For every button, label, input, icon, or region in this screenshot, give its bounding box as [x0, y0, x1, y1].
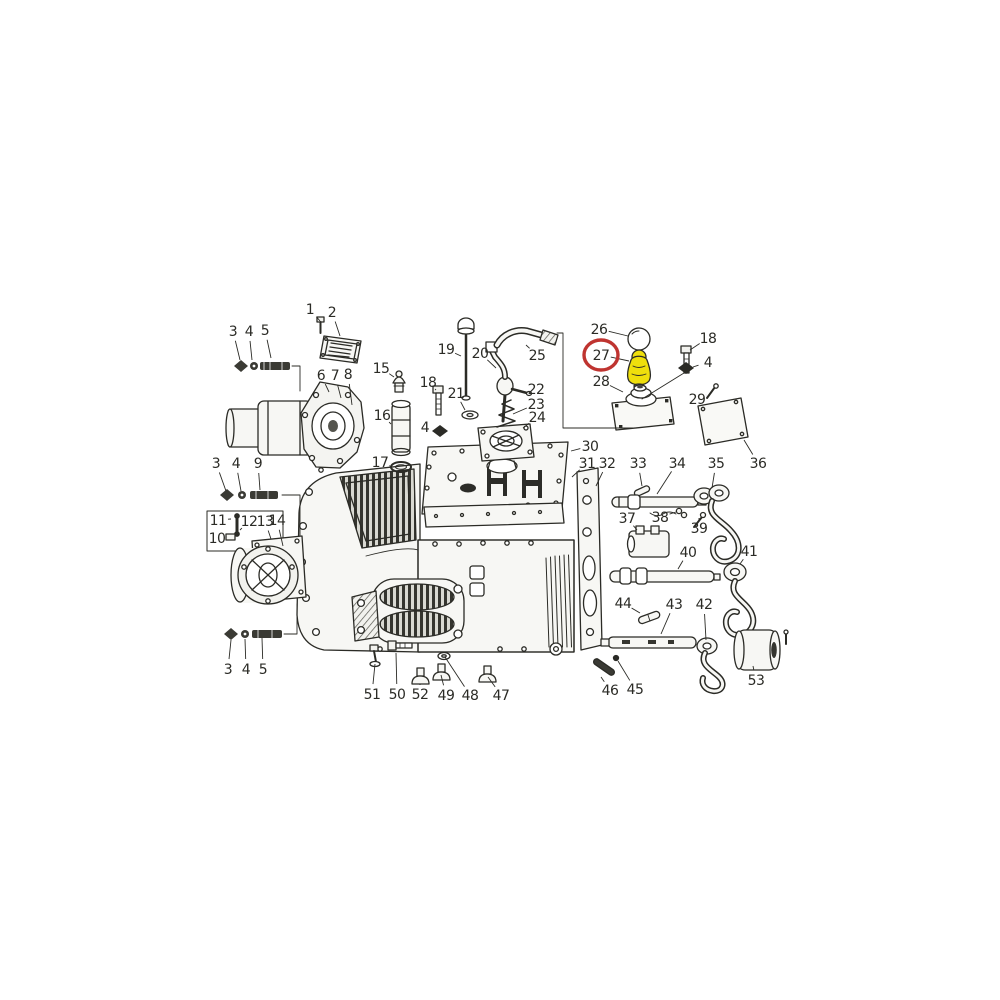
part-label-36: 36 [750, 456, 767, 472]
part-51-bolt [370, 645, 380, 667]
leader-line-4b [693, 365, 699, 367]
leader-line-50 [396, 653, 397, 684]
part-37-selector-block [628, 526, 670, 557]
leader-line-4e [245, 639, 246, 659]
part-31-gasket [424, 503, 564, 527]
leader-line-9 [259, 473, 260, 490]
leader-line-2 [335, 321, 340, 336]
part-34-shift-rail [612, 495, 706, 509]
part-label-27: 27 [593, 348, 610, 364]
leader-line-28 [610, 385, 623, 392]
part-27-boot [628, 350, 651, 388]
leader-line-23 [513, 408, 527, 414]
input-shaft-cover [226, 401, 312, 455]
part-label-19: 19 [438, 342, 455, 358]
leader-line-40 [678, 561, 683, 569]
leader-line-42 [705, 614, 706, 640]
part-41-shift-fork [724, 563, 753, 635]
parts-diagram-page: 1234567815161718419212025222324262728184… [0, 0, 1000, 1000]
part-label-16: 16 [374, 408, 391, 424]
part-label-53: 53 [748, 673, 765, 689]
part-label-11: 11 [210, 513, 227, 529]
part-53-block [734, 630, 788, 670]
leader-line-4a [250, 341, 252, 360]
part-label-34: 34 [669, 456, 686, 472]
stud-set-3-4-5-top [234, 360, 300, 391]
part-32-end-plate [577, 468, 602, 650]
part-label-22: 22 [528, 382, 545, 398]
part-label-30: 30 [582, 439, 599, 455]
part-48-washer [438, 653, 450, 660]
cover-clamp [352, 591, 379, 641]
part-label-51: 51 [364, 687, 381, 703]
part-46-pin [592, 658, 615, 677]
leader-line-4d [238, 473, 241, 491]
part-label-12: 12 [241, 514, 258, 530]
part-label-41: 41 [741, 544, 758, 560]
part-label-4a: 4 [245, 324, 254, 340]
part-52-plug [412, 668, 429, 684]
part-label-4b: 4 [704, 355, 713, 371]
part-44-pin [638, 610, 661, 624]
part-label-37: 37 [619, 511, 636, 527]
part-label-49: 49 [438, 688, 455, 704]
part-40-shift-rail [610, 568, 720, 584]
part-label-40: 40 [680, 545, 697, 561]
part-36-cover-plate [698, 398, 748, 445]
leader-line-26 [609, 331, 628, 336]
part-15-breather [393, 371, 405, 392]
leader-line-34 [657, 471, 672, 494]
part-label-5a: 5 [261, 323, 269, 339]
part-label-26: 26 [591, 322, 608, 338]
part-24-tower-base [478, 424, 534, 461]
part-20-gear-lever [486, 342, 513, 421]
part-1-bolt [317, 317, 324, 333]
part-label-42: 42 [696, 597, 713, 613]
part-label-39: 39 [691, 521, 708, 537]
leader-line-3b [219, 472, 226, 491]
leader-line-3c [229, 640, 231, 659]
part-label-44: 44 [615, 596, 632, 612]
part-label-18b: 18 [700, 331, 717, 347]
part-42-shift-fork [697, 638, 723, 691]
leader-line-5a [267, 340, 271, 358]
part-16-plunger [392, 401, 410, 456]
leader-line-48 [445, 657, 465, 687]
leader-line-15 [389, 374, 394, 377]
part-29-pin [707, 384, 718, 398]
diagram-svg: 1234567815161718419212025222324262728184… [0, 0, 1000, 1000]
part-25-lever-handle [497, 330, 558, 345]
part-label-21: 21 [448, 386, 465, 402]
part-label-14: 14 [269, 513, 286, 529]
part-label-3c: 3 [224, 662, 232, 678]
part-label-33: 33 [630, 456, 647, 472]
part-label-6: 6 [317, 368, 326, 384]
leader-line-46 [601, 677, 604, 682]
leader-line-43 [661, 613, 670, 634]
part-28-boot-retainer [612, 385, 674, 430]
part-label-10: 10 [209, 531, 226, 547]
part-label-2: 2 [328, 305, 336, 321]
part-label-9: 9 [254, 456, 262, 472]
part-45-pin [614, 656, 619, 661]
part-label-43: 43 [666, 597, 683, 613]
part-label-38: 38 [652, 510, 669, 526]
part-26-knob [628, 328, 650, 350]
part-label-35: 35 [708, 456, 725, 472]
part-label-4e: 4 [242, 662, 251, 678]
stud-set-3-4-5-bottom [224, 604, 297, 640]
leader-line-45 [618, 661, 630, 680]
part-label-17: 17 [372, 455, 389, 471]
leader-line-13 [268, 530, 271, 539]
leader-line-3a [235, 341, 240, 360]
leader-line-27 [611, 357, 629, 361]
part-label-3a: 3 [229, 324, 237, 340]
part-label-4c: 4 [421, 420, 430, 436]
part-label-50: 50 [389, 687, 406, 703]
part-6-7-8-bearing-retainer [301, 382, 364, 472]
part-label-8: 8 [344, 367, 352, 383]
part-23-spring [497, 400, 515, 427]
part-label-46: 46 [602, 683, 619, 699]
leader-line-19 [455, 353, 461, 356]
part-label-3b: 3 [212, 456, 220, 472]
part-label-18a: 18 [420, 375, 437, 391]
leader-line-44 [632, 608, 640, 613]
part-label-7: 7 [331, 368, 339, 384]
part-4-nut-right [678, 362, 694, 374]
bearing-cover-assembly [231, 536, 306, 604]
leader-line-36 [744, 440, 753, 454]
part-label-45: 45 [627, 682, 644, 698]
leader-line-33 [640, 473, 642, 486]
leader-line-30 [571, 449, 580, 451]
part-label-48: 48 [462, 688, 479, 704]
leader-line-5b [262, 638, 263, 659]
part-label-29: 29 [689, 392, 706, 408]
part-4-nut [432, 425, 448, 437]
part-47-plug [479, 666, 496, 682]
part-label-4d: 4 [232, 456, 241, 472]
part-2-louver-cover [320, 336, 361, 363]
part-label-28: 28 [593, 374, 610, 390]
part-label-32: 32 [599, 456, 616, 472]
leader-line-21 [461, 402, 465, 410]
part-label-47: 47 [493, 688, 510, 704]
part-label-31: 31 [579, 456, 596, 472]
part-label-24: 24 [529, 410, 546, 426]
part-label-52: 52 [412, 687, 429, 703]
part-label-1: 1 [306, 302, 314, 318]
part-label-20: 20 [472, 346, 489, 362]
part-21-washer [462, 411, 478, 419]
part-43-shift-rail [601, 637, 696, 648]
part-label-15: 15 [373, 361, 390, 377]
part-label-5b: 5 [259, 662, 267, 678]
part-label-25: 25 [529, 348, 546, 364]
